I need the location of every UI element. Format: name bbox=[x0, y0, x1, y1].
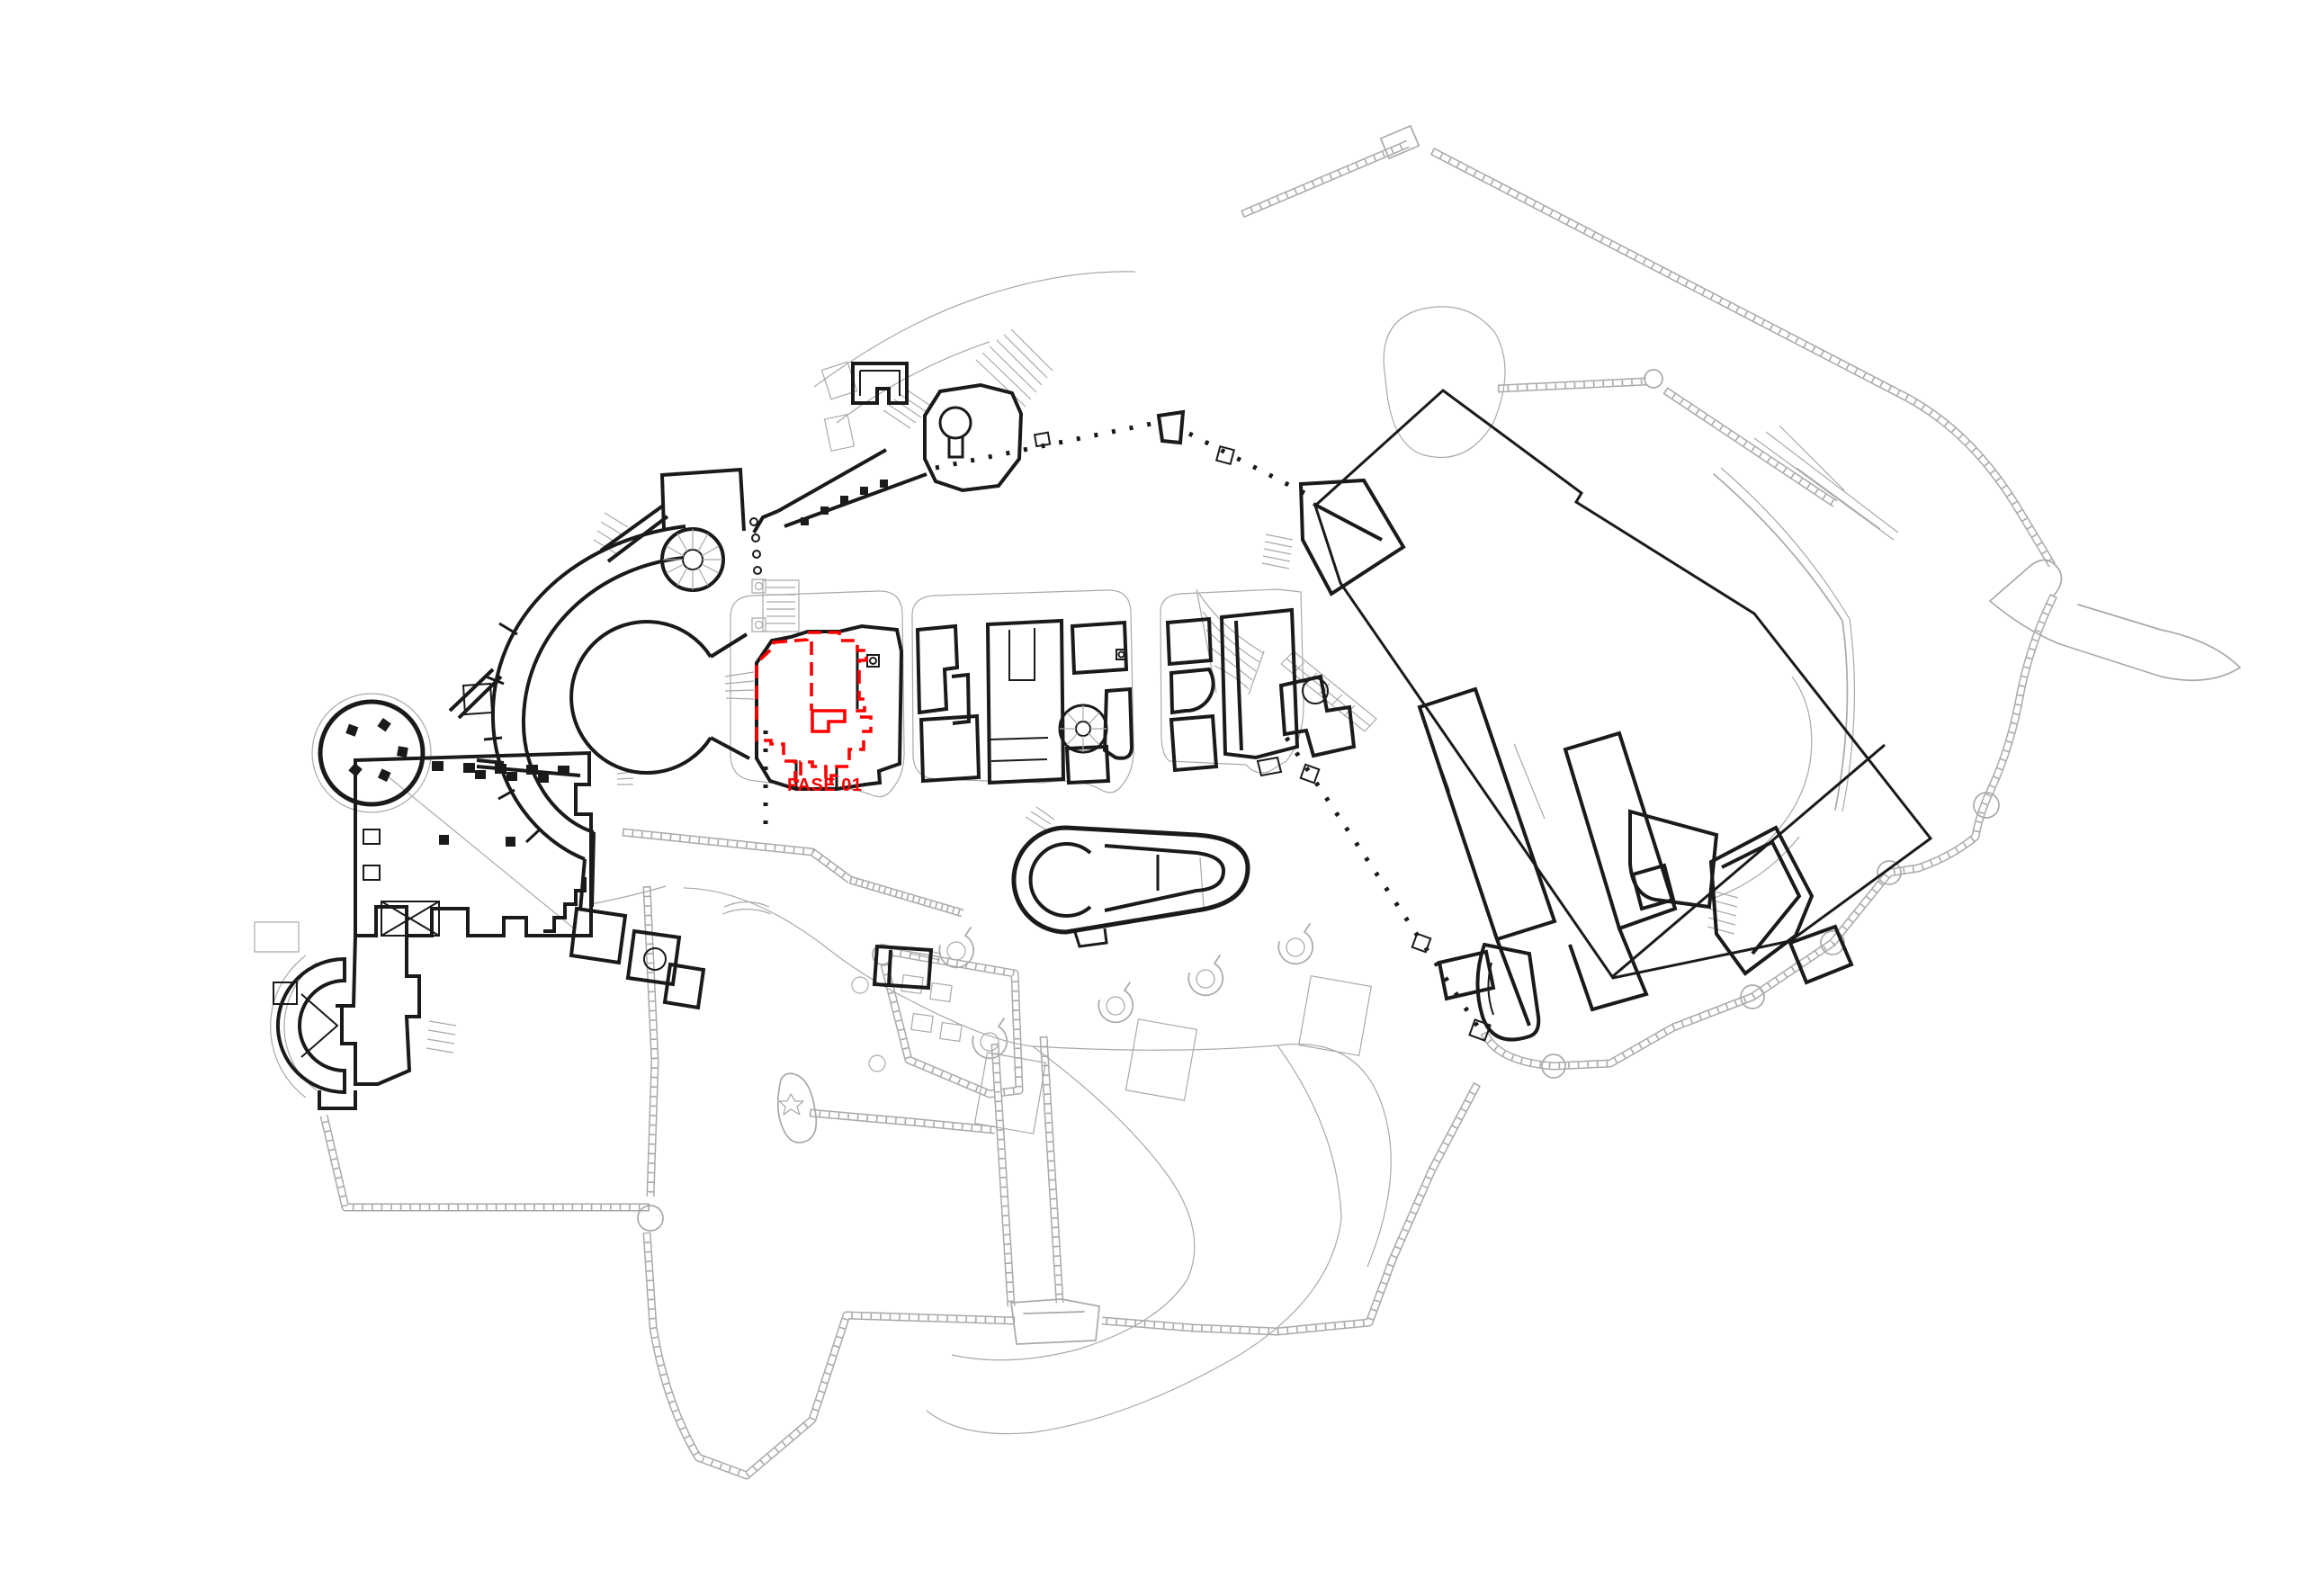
neck-room bbox=[662, 470, 744, 531]
spiral-stair bbox=[1060, 705, 1107, 752]
south-west-wing bbox=[273, 936, 419, 1108]
spiral-stair-tower bbox=[662, 529, 723, 590]
neighbor-block-2 bbox=[1168, 610, 1297, 776]
gate-wedge bbox=[1301, 480, 1403, 594]
fase-01-outline bbox=[757, 632, 871, 782]
corridor-walls bbox=[754, 450, 927, 533]
round-tower bbox=[320, 702, 423, 804]
terrain-contour bbox=[814, 272, 1135, 423]
tower-outer-ring bbox=[312, 694, 431, 812]
castle-walls-layer bbox=[273, 363, 1931, 1108]
plan-page: FASE 01 bbox=[0, 0, 2303, 1596]
trestle-walls bbox=[1754, 426, 1898, 540]
snail-ramps bbox=[939, 924, 1371, 1134]
parterre-squares bbox=[901, 975, 962, 1042]
colonnade-dots-2 bbox=[1189, 434, 1304, 493]
halfround-tower bbox=[278, 959, 345, 1092]
hall-pillar bbox=[439, 835, 449, 845]
hall-pillar bbox=[506, 837, 515, 847]
gate-pavilion bbox=[1159, 412, 1183, 443]
inner-court bbox=[571, 622, 749, 773]
rampart-end-post bbox=[1381, 126, 1420, 158]
neighbor-block-1 bbox=[918, 621, 1132, 783]
north-corridor bbox=[754, 363, 1403, 594]
stair-tower bbox=[925, 385, 1021, 490]
fase01-building-black bbox=[757, 626, 901, 789]
star-marker bbox=[779, 1094, 803, 1115]
grand-stair bbox=[752, 579, 799, 632]
woods-contour bbox=[1384, 307, 1505, 458]
site-plan-canvas bbox=[0, 0, 2303, 1596]
bridge-arm-north bbox=[601, 506, 668, 561]
inner-rampart-walk bbox=[1714, 474, 1847, 810]
site-lines-layer bbox=[255, 126, 2240, 1475]
wall-loop bbox=[1644, 370, 1662, 388]
south-range bbox=[543, 877, 931, 1008]
rampart-walls bbox=[324, 126, 2054, 1475]
phase-label: FASE 01 bbox=[787, 776, 863, 796]
great-court-polygon bbox=[1315, 390, 1931, 978]
oval-building bbox=[1014, 828, 1248, 946]
garden-gate bbox=[1011, 1299, 1099, 1344]
bastion-turret-knobs bbox=[638, 793, 1999, 1231]
